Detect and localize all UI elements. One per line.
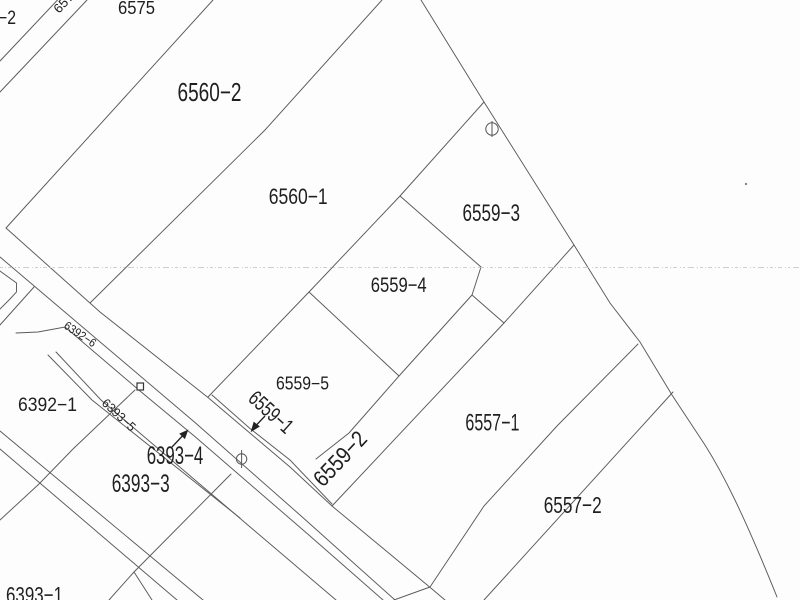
svg-text:6560−2: 6560−2 [178, 77, 242, 107]
svg-text:6393−3: 6393−3 [112, 470, 170, 498]
svg-text:6560−1: 6560−1 [269, 184, 328, 209]
svg-text:6559−4: 6559−4 [371, 274, 427, 297]
svg-text:6559−3: 6559−3 [463, 200, 521, 227]
svg-text:−2: −2 [0, 8, 16, 29]
svg-text:6393−4: 6393−4 [147, 442, 204, 470]
svg-text:6559−5: 6559−5 [276, 374, 329, 394]
svg-text:6557−1: 6557−1 [465, 410, 519, 437]
svg-text:6575: 6575 [118, 0, 155, 18]
svg-text:6393−1: 6393−1 [6, 583, 63, 600]
svg-text:6392−1: 6392−1 [18, 394, 77, 416]
svg-text:6557−2: 6557−2 [544, 492, 602, 518]
